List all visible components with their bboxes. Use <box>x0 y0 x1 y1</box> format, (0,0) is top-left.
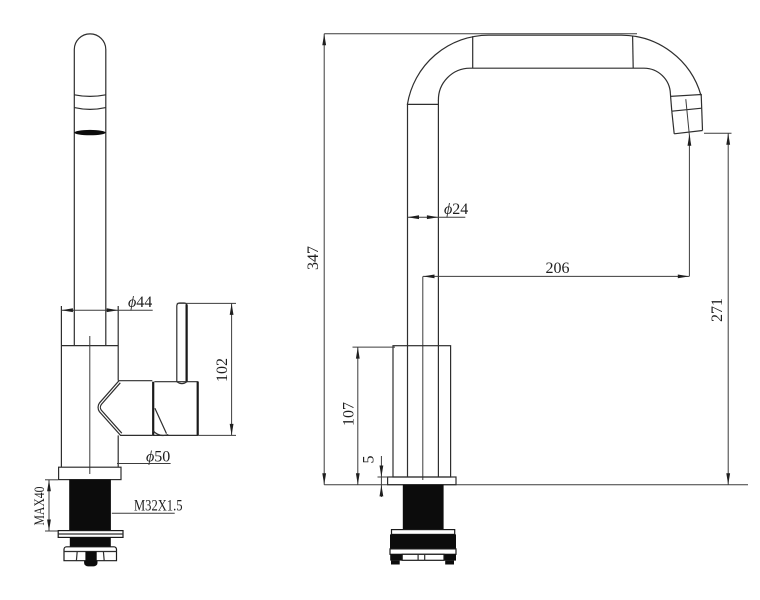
svg-text:ϕ44: ϕ44 <box>128 294 152 311</box>
svg-text:5: 5 <box>361 456 378 464</box>
svg-text:347: 347 <box>305 246 322 270</box>
svg-text:M32X1.5: M32X1.5 <box>134 498 183 515</box>
svg-text:102: 102 <box>214 358 231 382</box>
svg-text:ϕ24: ϕ24 <box>444 201 468 218</box>
svg-text:107: 107 <box>341 402 358 426</box>
svg-text:271: 271 <box>709 298 726 322</box>
svg-text:206: 206 <box>546 260 570 277</box>
svg-text:MAX40: MAX40 <box>32 487 48 526</box>
svg-text:ϕ50: ϕ50 <box>146 449 170 466</box>
